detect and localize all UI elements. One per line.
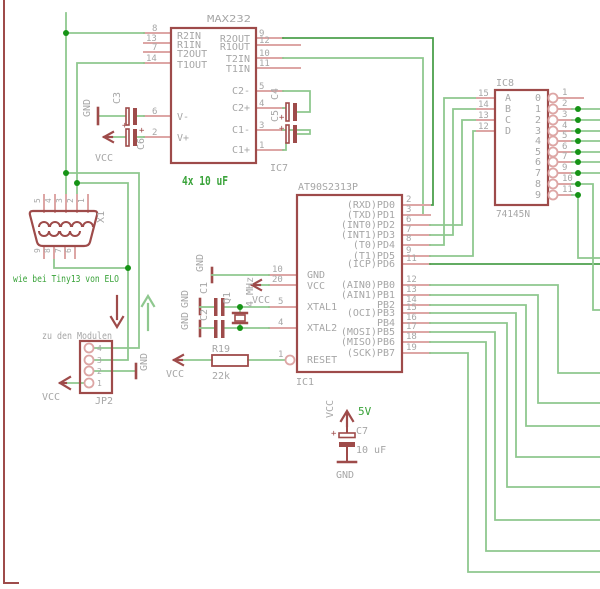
junction-dot — [575, 170, 581, 176]
num: 1 — [278, 350, 283, 360]
label-4mhz: 4 MHz — [245, 277, 256, 307]
num: 14 — [146, 54, 157, 64]
db9-pin: 8 — [43, 248, 52, 253]
num: 3 — [259, 121, 264, 131]
plus-c4: + — [279, 113, 285, 123]
c4-plate-solid — [293, 103, 297, 121]
num: 1 — [562, 88, 567, 98]
out-bubble-2 — [549, 116, 558, 125]
label-gnd-c2: GND — [180, 312, 191, 330]
num: 7 — [562, 152, 567, 162]
db9-arc-t5 — [39, 222, 49, 227]
pin: (ICP)PD6 — [347, 259, 395, 270]
num: 6 — [562, 142, 567, 152]
num: 15 — [406, 303, 417, 313]
ic7-part: MAX232 — [207, 14, 251, 25]
r19-ref: R19 — [212, 344, 230, 355]
pin: C — [505, 115, 511, 126]
num: 2 — [406, 195, 411, 205]
junction-dot — [575, 159, 581, 165]
junction-dot — [237, 325, 243, 331]
label-q1: Q1 — [222, 292, 233, 304]
note-modules: zu den Modulen — [42, 331, 112, 342]
num: 17 — [406, 322, 417, 332]
pin: D — [505, 126, 511, 137]
num: 13 — [406, 285, 417, 295]
wire-c5-in — [283, 143, 286, 150]
pin: 1 — [535, 104, 541, 115]
num: 10 — [272, 265, 283, 275]
jp2-pin3 — [85, 356, 94, 365]
pin: B — [505, 104, 511, 115]
wire-pb1 — [430, 295, 600, 403]
junction-dot — [575, 117, 581, 123]
num: 11 — [406, 254, 417, 264]
num: 4 — [562, 121, 567, 131]
db9-pin: 1 — [77, 198, 86, 203]
q1-body — [235, 315, 245, 321]
db9-pin: 6 — [64, 248, 73, 253]
db9-arc-b6 — [70, 231, 80, 236]
wire-r2out-rxd — [283, 38, 433, 205]
c5-plate-solid — [293, 125, 297, 143]
c1-plate-a — [214, 298, 218, 316]
wire-net-mid — [77, 183, 128, 268]
label-vcc-c7: VCC — [325, 400, 336, 418]
label-c3: C3 — [112, 92, 123, 104]
c5-plate-open — [286, 125, 289, 143]
db9-pin: 4 — [44, 198, 53, 203]
out-bubble-6 — [549, 158, 558, 167]
num: 5 — [278, 297, 283, 307]
rail-5v: 5V — [358, 405, 372, 418]
junction-dot — [575, 192, 581, 198]
wire-out9 — [572, 195, 600, 258]
db9-arc-b7 — [60, 231, 70, 236]
jp2-pin4 — [85, 344, 94, 353]
label-gnd-c1: GND — [180, 290, 191, 308]
db9-pin: 3 — [55, 198, 64, 203]
out-bubble-7 — [549, 169, 558, 178]
num: 12 — [259, 36, 270, 46]
c7-plate-solid — [339, 442, 355, 447]
cap-bank-note: 4x 10 uF — [182, 174, 228, 188]
db9-arc-t2 — [72, 222, 82, 227]
ic8-ref: IC8 — [496, 78, 514, 89]
pin: 8 — [535, 179, 541, 190]
label-c1: C1 — [199, 282, 210, 294]
num: 11 — [562, 185, 573, 195]
db9-pin: 9 — [33, 248, 42, 253]
pin-t1in: T1IN — [226, 64, 250, 75]
db9-arc-b9 — [39, 231, 49, 236]
db9-arc-b8 — [49, 231, 59, 236]
out-bubble-9 — [549, 191, 558, 200]
db9-arc-t4 — [50, 222, 60, 227]
jp2-pin2 — [85, 367, 94, 376]
junction-dot — [575, 106, 581, 112]
num: 15 — [478, 89, 489, 99]
wire-out8 — [572, 184, 600, 310]
jp2-pin-num: 3 — [97, 356, 102, 365]
pin: RESET — [307, 355, 337, 366]
schematic-page: MAX232IC7R2INR1INT2OUTT1OUTV-V+R2OUTR1OU… — [0, 0, 600, 589]
out-bubble-0 — [549, 94, 558, 103]
num: 2 — [562, 99, 567, 109]
c7-value: 10 uF — [356, 445, 386, 456]
num: 18 — [406, 332, 417, 342]
num: 9 — [562, 163, 567, 173]
num: 19 — [406, 343, 417, 353]
label-gnd-c7: GND — [336, 470, 354, 481]
num: 1 — [259, 141, 264, 151]
db9-arc-t3 — [61, 222, 71, 227]
plus-c3: + — [122, 121, 128, 131]
junction-dot — [575, 128, 581, 134]
r19-value: 22k — [212, 371, 230, 382]
out-bubble-1 — [549, 105, 558, 114]
pin: 4 — [535, 136, 541, 147]
wire-pb7 — [430, 353, 600, 572]
out-bubble-8 — [549, 180, 558, 189]
num: 12 — [478, 122, 489, 132]
jp2-ref: JP2 — [95, 396, 113, 407]
wire-pb3 — [430, 313, 600, 457]
frame-left-border — [4, 0, 18, 583]
label-gnd-c3: GND — [82, 99, 93, 117]
num: 8 — [406, 234, 411, 244]
pin-vplus: V+ — [177, 133, 189, 144]
c4-plate-open — [286, 103, 289, 121]
pin: 2 — [535, 115, 541, 126]
num: 12 — [406, 275, 417, 285]
ic1-ref: IC1 — [296, 377, 314, 388]
num: 6 — [152, 107, 157, 117]
plus-c7: + — [331, 429, 337, 439]
c7-plate-open — [339, 433, 355, 438]
jp2-pin-num: 2 — [97, 367, 102, 376]
num: 4 — [278, 318, 283, 328]
label-c6: C6 — [136, 138, 147, 150]
out-bubble-3 — [549, 127, 558, 136]
pin-r1out: R1OUT — [220, 42, 250, 53]
jp2-pin-num: 4 — [97, 344, 102, 353]
num: 14 — [478, 100, 489, 110]
jp2-pin1 — [85, 379, 94, 388]
c2-plate-b — [221, 320, 225, 338]
junction-dot — [74, 180, 80, 186]
num: 8 — [152, 24, 157, 34]
out-bubble-5 — [549, 148, 558, 157]
pin-c1p: C1+ — [232, 145, 250, 156]
junction-dot — [575, 138, 581, 144]
pin: 9 — [535, 190, 541, 201]
db9-pin: 2 — [66, 198, 75, 203]
junction-dot — [237, 304, 243, 310]
label-c4: C4 — [270, 88, 281, 100]
num: 4 — [259, 99, 264, 109]
wire-pb0 — [430, 285, 600, 373]
x1-ref: X1 — [96, 211, 107, 223]
pin: VCC — [307, 281, 325, 292]
db9-outline — [30, 211, 97, 246]
db9-pin: 7 — [54, 248, 63, 253]
c2-plate-a — [214, 320, 218, 338]
layer-text: MAX232IC7R2INR1INT2OUTT1OUTV-V+R2OUTR1OU… — [13, 14, 573, 481]
num: 20 — [272, 275, 283, 285]
num: 10 — [562, 174, 573, 184]
num: 10 — [259, 49, 270, 59]
num: 2 — [152, 128, 157, 138]
pin: (T0)PD4 — [353, 240, 395, 251]
wire-pd3-b — [430, 109, 477, 235]
schematic-canvas: MAX232IC7R2INR1INT2OUTT1OUTV-V+R2OUTR1OU… — [0, 0, 600, 589]
wire-net-db9-8 — [54, 258, 128, 268]
out-bubble-4 — [549, 137, 558, 146]
pin-c2p: C2+ — [232, 103, 250, 114]
pin: (SCK)PB7 — [347, 348, 395, 359]
pin: GND — [307, 270, 325, 281]
label-vcc-c6: VCC — [95, 153, 113, 164]
c3-plate-solid — [133, 108, 137, 125]
label-vcc-r19: VCC — [166, 369, 184, 380]
pin: XTAL2 — [307, 323, 337, 334]
pin-t1out: T1OUT — [177, 60, 207, 71]
pin: XTAL1 — [307, 302, 337, 313]
c6-plate-open — [126, 129, 129, 146]
num: 13 — [478, 111, 489, 121]
pin: A — [505, 93, 511, 104]
pin-vminus: V- — [177, 112, 189, 123]
pin: 0 — [535, 93, 541, 104]
plus-c6: + — [139, 126, 145, 136]
pin-t2out: T2OUT — [177, 49, 207, 60]
reset-bubble — [286, 356, 295, 365]
note-elo: wie bei Tiny13 von ELO — [13, 274, 119, 285]
r19-body — [212, 355, 248, 366]
num: 7 — [152, 43, 157, 53]
c7-ref: C7 — [356, 426, 368, 437]
pin: 6 — [535, 157, 541, 168]
num: 3 — [406, 205, 411, 215]
db9-arc-t1 — [83, 222, 93, 227]
ic7-ref: IC7 — [270, 163, 288, 174]
label-gnd-p10: GND — [195, 254, 206, 272]
ic8-part: 74145N — [496, 209, 530, 220]
pin-c1m: C1- — [232, 125, 250, 136]
plus-c5: + — [279, 124, 285, 134]
num: 3 — [562, 110, 567, 120]
num: 6 — [406, 215, 411, 225]
pin: (MISO)PB6 — [341, 337, 395, 348]
junction-dot — [63, 30, 69, 36]
num: 5 — [562, 131, 567, 141]
junction-dot — [63, 170, 69, 176]
num: 11 — [259, 59, 270, 69]
junction-dot — [125, 265, 131, 271]
pin: 7 — [535, 168, 541, 179]
num: 5 — [259, 82, 264, 92]
label-gnd-jp2: GND — [139, 353, 150, 371]
label-vcc-jp2: VCC — [42, 392, 60, 403]
junction-dot — [575, 181, 581, 187]
junction-dot — [575, 149, 581, 155]
pin-c2m: C2- — [232, 86, 250, 97]
jp2-pin-num: 1 — [97, 379, 102, 388]
label-c2: C2 — [199, 309, 210, 321]
db9-pin: 5 — [33, 198, 42, 203]
ic1-part: AT90S2313P — [298, 182, 358, 193]
wire-pb4 — [430, 323, 600, 487]
